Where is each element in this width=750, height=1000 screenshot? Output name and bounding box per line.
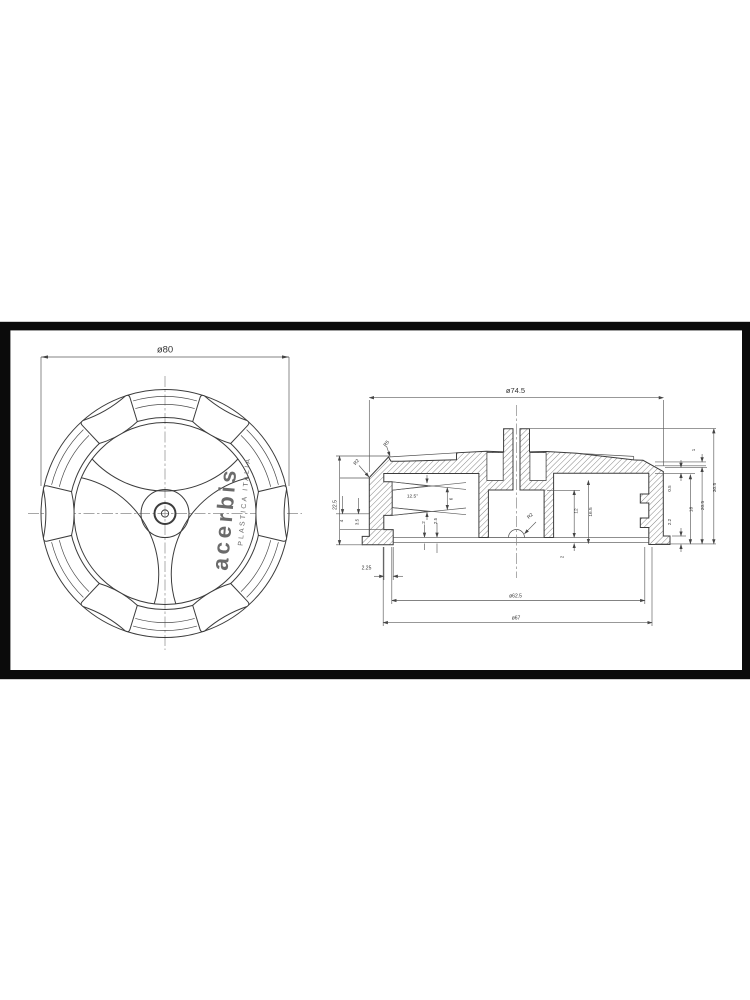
svg-text:2.2: 2.2	[667, 518, 672, 525]
svg-text:ø62.5: ø62.5	[509, 594, 522, 600]
svg-text:12: 12	[574, 508, 580, 514]
svg-text:0.5: 0.5	[667, 485, 672, 492]
svg-text:3.5: 3.5	[355, 518, 360, 525]
svg-text:16.5: 16.5	[588, 507, 594, 517]
svg-text:22.5: 22.5	[333, 500, 339, 510]
svg-text:2.5: 2.5	[433, 517, 438, 524]
svg-text:12.5°: 12.5°	[407, 494, 418, 500]
svg-text:20.5: 20.5	[700, 501, 706, 511]
svg-text:2.25: 2.25	[362, 566, 372, 572]
svg-text:ø74.5: ø74.5	[506, 386, 525, 395]
svg-text:ø80: ø80	[157, 345, 173, 356]
svg-text:18: 18	[688, 507, 694, 513]
svg-text:30.5: 30.5	[712, 483, 718, 493]
svg-text:ø67: ø67	[512, 616, 521, 622]
